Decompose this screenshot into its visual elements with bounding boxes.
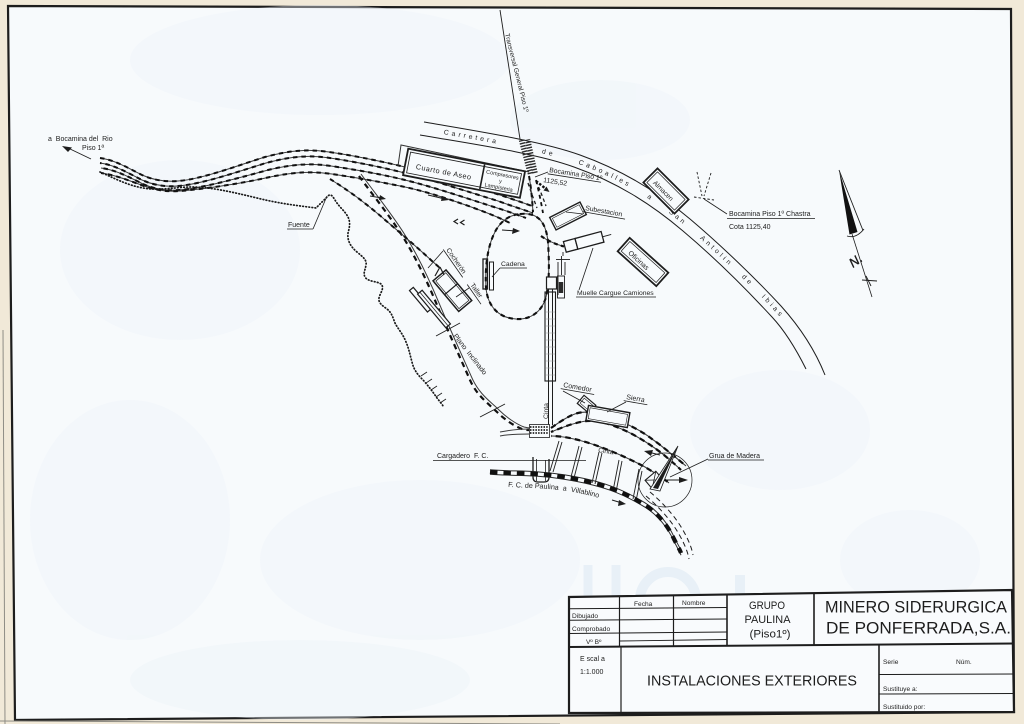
svg-text:Sustituye a:: Sustituye a: [883, 686, 918, 693]
svg-text:Muelle Cargue Camiones: Muelle Cargue Camiones [577, 290, 654, 297]
svg-text:GRUPO: GRUPO [749, 600, 785, 612]
svg-text:a Bocamina del Rio: a Bocamina del Rio [48, 136, 113, 143]
svg-text:(Piso1º): (Piso1º) [750, 629, 791, 641]
svg-text:Cinta: Cinta [543, 403, 550, 419]
svg-text:Vº Bº: Vº Bº [586, 639, 602, 646]
svg-text:E scal a: E scal a [580, 656, 605, 663]
svg-text:Sustituido por:: Sustituido por: [883, 704, 925, 711]
svg-text:Piso 1ª: Piso 1ª [82, 145, 104, 152]
svg-text:Núm.: Núm. [956, 659, 972, 666]
svg-text:PAULINA: PAULINA [745, 614, 792, 626]
svg-text:Dibujado: Dibujado [572, 613, 598, 620]
svg-text:MINERO SIDERURGICA: MINERO SIDERURGICA [825, 599, 1007, 617]
svg-text:Serie: Serie [883, 659, 899, 666]
svg-text:Nombre: Nombre [682, 600, 706, 607]
svg-text:Comprobado: Comprobado [572, 626, 610, 633]
svg-text:Cargadero F. C.: Cargadero F. C. [437, 453, 488, 460]
svg-text:Bocamina Piso 1º Chastra: Bocamina Piso 1º Chastra [729, 211, 811, 218]
svg-text:Cota 1125,40: Cota 1125,40 [729, 224, 771, 231]
svg-text:Cadena: Cadena [501, 261, 525, 268]
svg-text:INSTALACIONES EXTERIORES: INSTALACIONES EXTERIORES [647, 674, 857, 690]
svg-text:Grua de Madera: Grua de Madera [709, 453, 760, 460]
svg-text:DE PONFERRADA,S.A.: DE PONFERRADA,S.A. [826, 620, 1011, 638]
svg-text:Fecha: Fecha [634, 601, 653, 608]
svg-text:1:1.000: 1:1.000 [580, 669, 603, 676]
svg-text:Fuente: Fuente [288, 222, 310, 229]
